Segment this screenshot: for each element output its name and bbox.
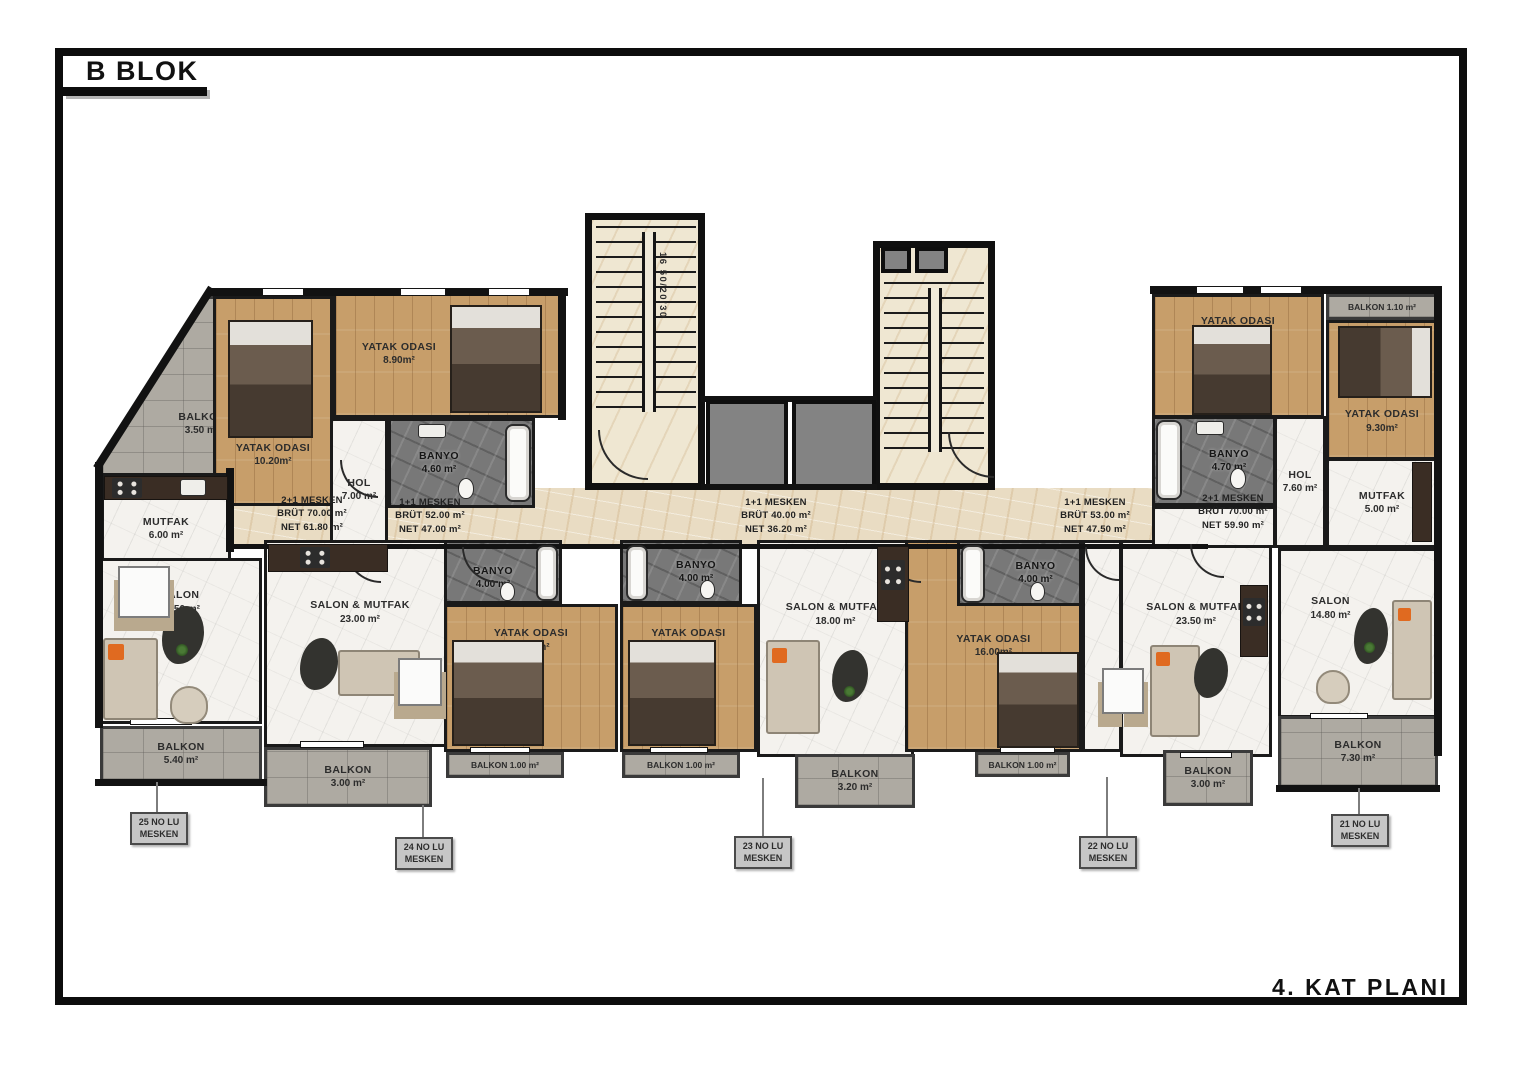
elevator-shaft-1: [706, 400, 788, 488]
dining-table-icon: [118, 566, 170, 618]
bathtub-icon: [1156, 420, 1182, 500]
wall: [95, 462, 103, 728]
callout-number: 22 NO LU: [1081, 841, 1135, 853]
unit-type: 2+1 MESKEN: [268, 494, 356, 507]
sofa-pillow-icon: [772, 648, 787, 663]
callout-number: 24 NO LU: [397, 842, 451, 854]
toilet-icon: [500, 582, 515, 601]
room-label: SALON & MUTFAK: [1146, 601, 1246, 615]
unit-brut: BRÜT 70.00 m²: [1188, 505, 1278, 518]
sofa-pillow-icon: [1398, 608, 1411, 621]
window: [400, 288, 446, 296]
room-balkon-sw-a25: BALKON 5.40 m²: [100, 726, 262, 782]
room-area: 8.90m²: [383, 354, 415, 367]
unit-net: NET 36.20 m²: [734, 523, 818, 536]
room-label: BALKON 1.00 m²: [647, 760, 715, 770]
room-label: YATAK ODASI: [956, 633, 1030, 647]
room-label: BANYO: [419, 450, 459, 464]
bed-icon: [450, 305, 542, 413]
room-label: SALON: [1311, 595, 1350, 609]
callout-a23: 23 NO LU MESKEN: [734, 836, 792, 869]
unit-net: NET 47.00 m²: [388, 523, 472, 536]
unit-type: 1+1 MESKEN: [388, 496, 472, 509]
room-balkon-a23: BALKON 3.20 m²: [795, 754, 915, 808]
room-area: 4.60 m²: [422, 463, 456, 476]
elevator-shaft-small-2: [915, 247, 948, 273]
room-label: BALKON: [324, 764, 371, 778]
unit-info-a22: 1+1 MESKEN BRÜT 53.00 m² NET 47.50 m²: [1052, 496, 1138, 536]
room-label: BALKON: [157, 741, 204, 755]
elevator-shaft-2: [792, 400, 876, 488]
stair-dimension-note: 16 50/20/30: [657, 252, 668, 319]
unit-info-a25: 2+1 MESKEN BRÜT 70.00 m² NET 61.80 m²: [268, 494, 356, 534]
room-balkon-small-a23: BALKON 1.00 m²: [622, 752, 740, 778]
window: [262, 288, 304, 296]
title-underline: [63, 87, 207, 96]
room-area: 23.50 m²: [1176, 615, 1216, 628]
plant-icon: [1364, 642, 1375, 653]
sofa-pillow-icon: [1156, 652, 1170, 666]
sink-icon: [418, 424, 446, 438]
room-area: 10.20m²: [254, 455, 291, 468]
unit-type: 1+1 MESKEN: [734, 496, 818, 509]
callout-word: MESKEN: [736, 853, 790, 865]
wall: [1434, 286, 1442, 756]
room-label: BANYO: [1209, 448, 1249, 462]
sink-icon: [180, 479, 206, 496]
room-area: 3.20 m²: [838, 781, 872, 794]
callout-leader-line: [422, 805, 424, 837]
stove-icon: [300, 547, 330, 568]
room-label: BALKON: [1184, 765, 1231, 779]
callout-leader-line: [1106, 777, 1108, 836]
callout-a25: 25 NO LU MESKEN: [130, 812, 188, 845]
room-balkon-small-a21: BALKON 1.10 m²: [1326, 294, 1438, 320]
plant-icon: [844, 686, 855, 697]
room-balkon-small-a22: BALKON 1.00 m²: [975, 752, 1070, 777]
room-label: MUTFAK: [1359, 490, 1405, 504]
room-balkon-a21: BALKON 7.30 m²: [1278, 716, 1438, 788]
unit-net: NET 61.80 m²: [268, 521, 356, 534]
unit-net: NET 47.50 m²: [1052, 523, 1138, 536]
bathtub-icon: [505, 424, 531, 502]
callout-word: MESKEN: [1333, 831, 1387, 843]
window: [488, 288, 530, 296]
plant-icon: [176, 644, 188, 656]
room-area: 7.60 m²: [1283, 482, 1317, 495]
room-label: YATAK ODASI: [651, 627, 725, 641]
callout-word: MESKEN: [1081, 853, 1135, 865]
room-label: BANYO: [1016, 560, 1056, 574]
unit-type: 2+1 MESKEN: [1188, 492, 1278, 505]
room-label: YATAK ODASI: [236, 442, 310, 456]
wall: [558, 288, 566, 420]
kitchen-counter-icon: [1412, 462, 1432, 542]
room-area: 6.00 m²: [149, 529, 183, 542]
bathtub-icon: [536, 545, 558, 601]
room-label: YATAK ODASI: [494, 627, 568, 641]
unit-net: NET 59.90 m²: [1188, 519, 1278, 532]
room-balkon-a24: BALKON 3.00 m²: [264, 747, 432, 807]
window: [470, 747, 530, 753]
toilet-icon: [700, 580, 715, 599]
dining-table-icon: [398, 658, 442, 706]
callout-number: 23 NO LU: [736, 841, 790, 853]
callout-leader-line: [1358, 788, 1360, 814]
toilet-icon: [1230, 468, 1246, 489]
stair-stringer-right: [928, 288, 942, 452]
armchair-icon: [1316, 670, 1350, 704]
room-label: BALKON 1.00 m²: [471, 760, 539, 770]
room-balkon-a22: BALKON 3.00 m²: [1163, 750, 1253, 806]
room-label: BALKON 1.10 m²: [1348, 302, 1416, 312]
bed-icon: [452, 640, 544, 746]
callout-leader-line: [156, 782, 158, 812]
callout-word: MESKEN: [397, 854, 451, 866]
room-area: 23.00 m²: [340, 613, 380, 626]
stove-icon: [112, 478, 142, 498]
room-label: BALKON: [1334, 739, 1381, 753]
room-label: YATAK ODASI: [362, 341, 436, 355]
wall: [95, 779, 267, 786]
callout-number: 21 NO LU: [1333, 819, 1387, 831]
room-label: HOL: [1288, 469, 1311, 483]
window: [1310, 713, 1368, 719]
room-label: SALON & MUTFAK: [786, 601, 886, 615]
floor-plan-page: B BLOK 4. KAT PLANI BALKON 3.50 m² YATAK…: [0, 0, 1527, 1080]
callout-number: 25 NO LU: [132, 817, 186, 829]
room-label: YATAK ODASI: [1345, 408, 1419, 422]
bathtub-icon: [961, 545, 985, 603]
dining-table-icon: [1102, 668, 1144, 714]
room-balkon-small-a24: BALKON 1.00 m²: [446, 752, 564, 778]
sink-icon: [1196, 421, 1224, 435]
toilet-icon: [1030, 582, 1045, 601]
window: [1260, 286, 1302, 294]
room-label: BANYO: [676, 559, 716, 573]
unit-info-a21: 2+1 MESKEN BRÜT 70.00 m² NET 59.90 m²: [1188, 492, 1278, 532]
stove-icon: [881, 560, 905, 590]
wall: [701, 484, 877, 490]
block-title: B BLOK: [86, 56, 199, 87]
room-hol-a21: HOL 7.60 m²: [1274, 416, 1326, 548]
stair-stringer-left: [642, 232, 656, 412]
window: [1196, 286, 1244, 294]
room-area: 14.80 m²: [1310, 609, 1350, 622]
window: [650, 747, 708, 753]
callout-a24: 24 NO LU MESKEN: [395, 837, 453, 870]
bathtub-icon: [626, 545, 648, 601]
window: [1180, 752, 1232, 758]
room-area: 3.00 m²: [331, 777, 365, 790]
callout-leader-line: [762, 778, 764, 836]
callout-a22: 22 NO LU MESKEN: [1079, 836, 1137, 869]
unit-brut: BRÜT 52.00 m²: [388, 509, 472, 522]
room-area: 5.00 m²: [1365, 503, 1399, 516]
room-area: 18.00 m²: [815, 615, 855, 628]
unit-info-a23: 1+1 MESKEN BRÜT 40.00 m² NET 36.20 m²: [734, 496, 818, 536]
sofa-pillow-icon: [108, 644, 124, 660]
unit-type: 1+1 MESKEN: [1052, 496, 1138, 509]
unit-brut: BRÜT 40.00 m²: [734, 509, 818, 522]
floor-plan-title: 4. KAT PLANI: [1272, 974, 1449, 1001]
bed-icon: [228, 320, 313, 438]
room-label: BALKON 1.00 m²: [988, 760, 1056, 770]
room-area: 7.30 m²: [1341, 752, 1375, 765]
bed-icon: [1192, 325, 1272, 415]
unit-brut: BRÜT 53.00 m²: [1052, 509, 1138, 522]
room-area: 9.30m²: [1366, 422, 1398, 435]
bed-icon: [997, 652, 1079, 748]
room-area: 5.40 m²: [164, 754, 198, 767]
window: [300, 741, 364, 748]
room-label: SALON & MUTFAK: [310, 599, 410, 613]
room-area: 3.00 m²: [1191, 778, 1225, 791]
room-label: MUTFAK: [143, 516, 189, 530]
bed-icon: [1338, 326, 1432, 398]
unit-brut: BRÜT 70.00 m²: [268, 507, 356, 520]
callout-a21: 21 NO LU MESKEN: [1331, 814, 1389, 847]
stove-icon: [1243, 598, 1265, 626]
callout-word: MESKEN: [132, 829, 186, 841]
armchair-icon: [170, 686, 208, 724]
bed-icon: [628, 640, 716, 746]
room-label: BALKON: [831, 768, 878, 782]
elevator-shaft-small-1: [881, 247, 911, 273]
unit-info-a24: 1+1 MESKEN BRÜT 52.00 m² NET 47.00 m²: [388, 496, 472, 536]
